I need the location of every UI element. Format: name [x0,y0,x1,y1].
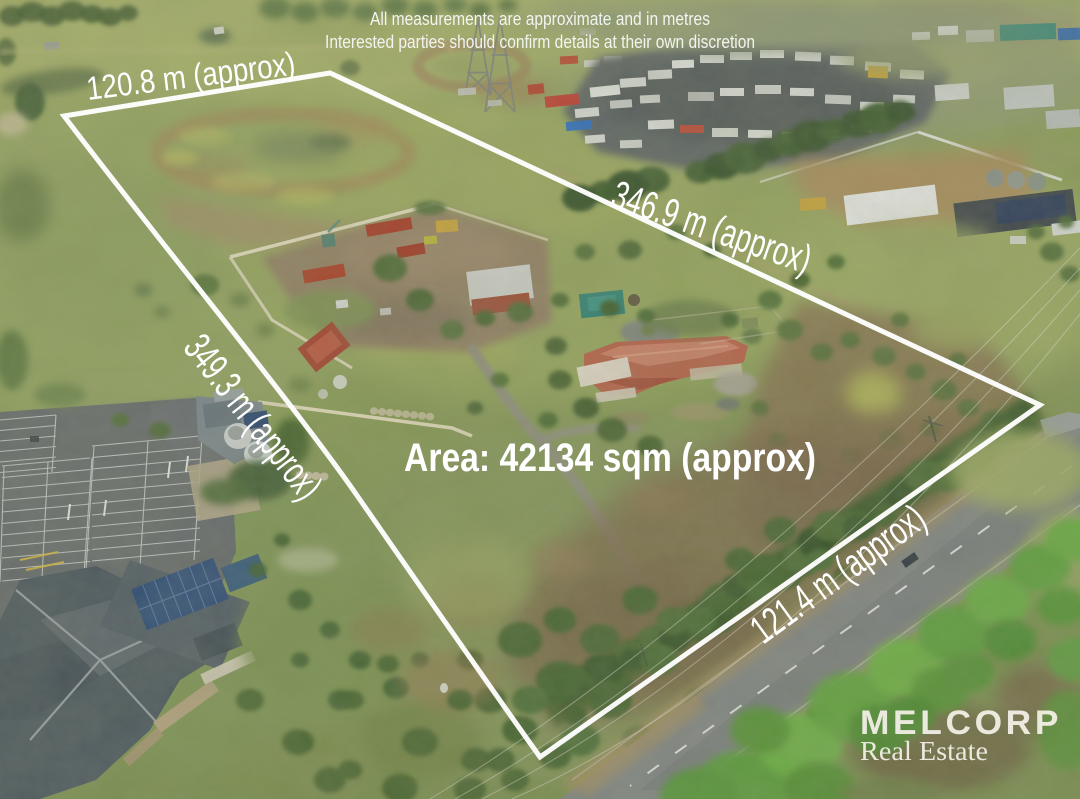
svg-text:Real Estate: Real Estate [860,736,988,766]
svg-text:Interested parties should conf: Interested parties should confirm detail… [325,31,755,52]
svg-text:All measurements are approxima: All measurements are approximate and in … [370,8,710,29]
svg-text:Area: 42134 sqm (approx): Area: 42134 sqm (approx) [404,436,816,480]
